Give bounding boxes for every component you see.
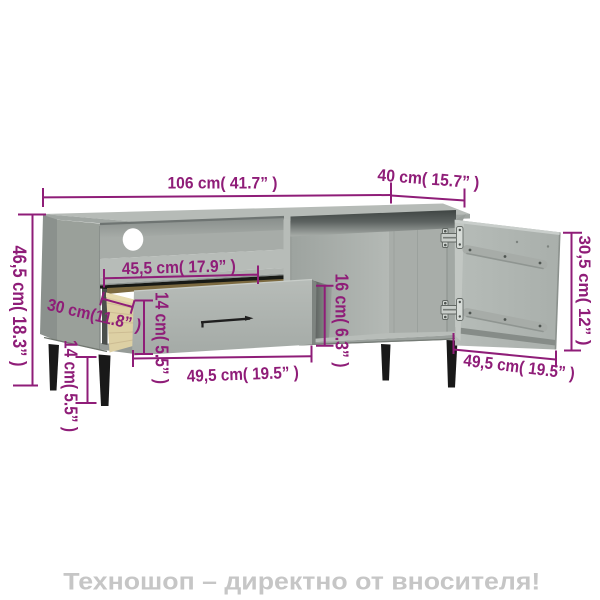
svg-text:14 cm( 5.5” ): 14 cm( 5.5” ) — [152, 292, 172, 384]
svg-text:14 cm( 5.5” ): 14 cm( 5.5” ) — [61, 340, 81, 432]
svg-text:106 cm( 41.7” ): 106 cm( 41.7” ) — [168, 175, 278, 193]
svg-text:49,5 cm( 19.5” ): 49,5 cm( 19.5” ) — [187, 363, 300, 386]
svg-text:45,5 cm( 17.9” ): 45,5 cm( 17.9” ) — [122, 256, 236, 278]
svg-text:46,5 cm( 18.3” ): 46,5 cm( 18.3” ) — [8, 246, 29, 367]
svg-text:30,5 cm( 12” ): 30,5 cm( 12” ) — [575, 236, 594, 346]
svg-text:Техношоп – директно от вносите: Техношоп – директно от вносителя! — [63, 569, 540, 596]
svg-text:16 cm( 6.3” ): 16 cm( 6.3” ) — [332, 274, 352, 368]
